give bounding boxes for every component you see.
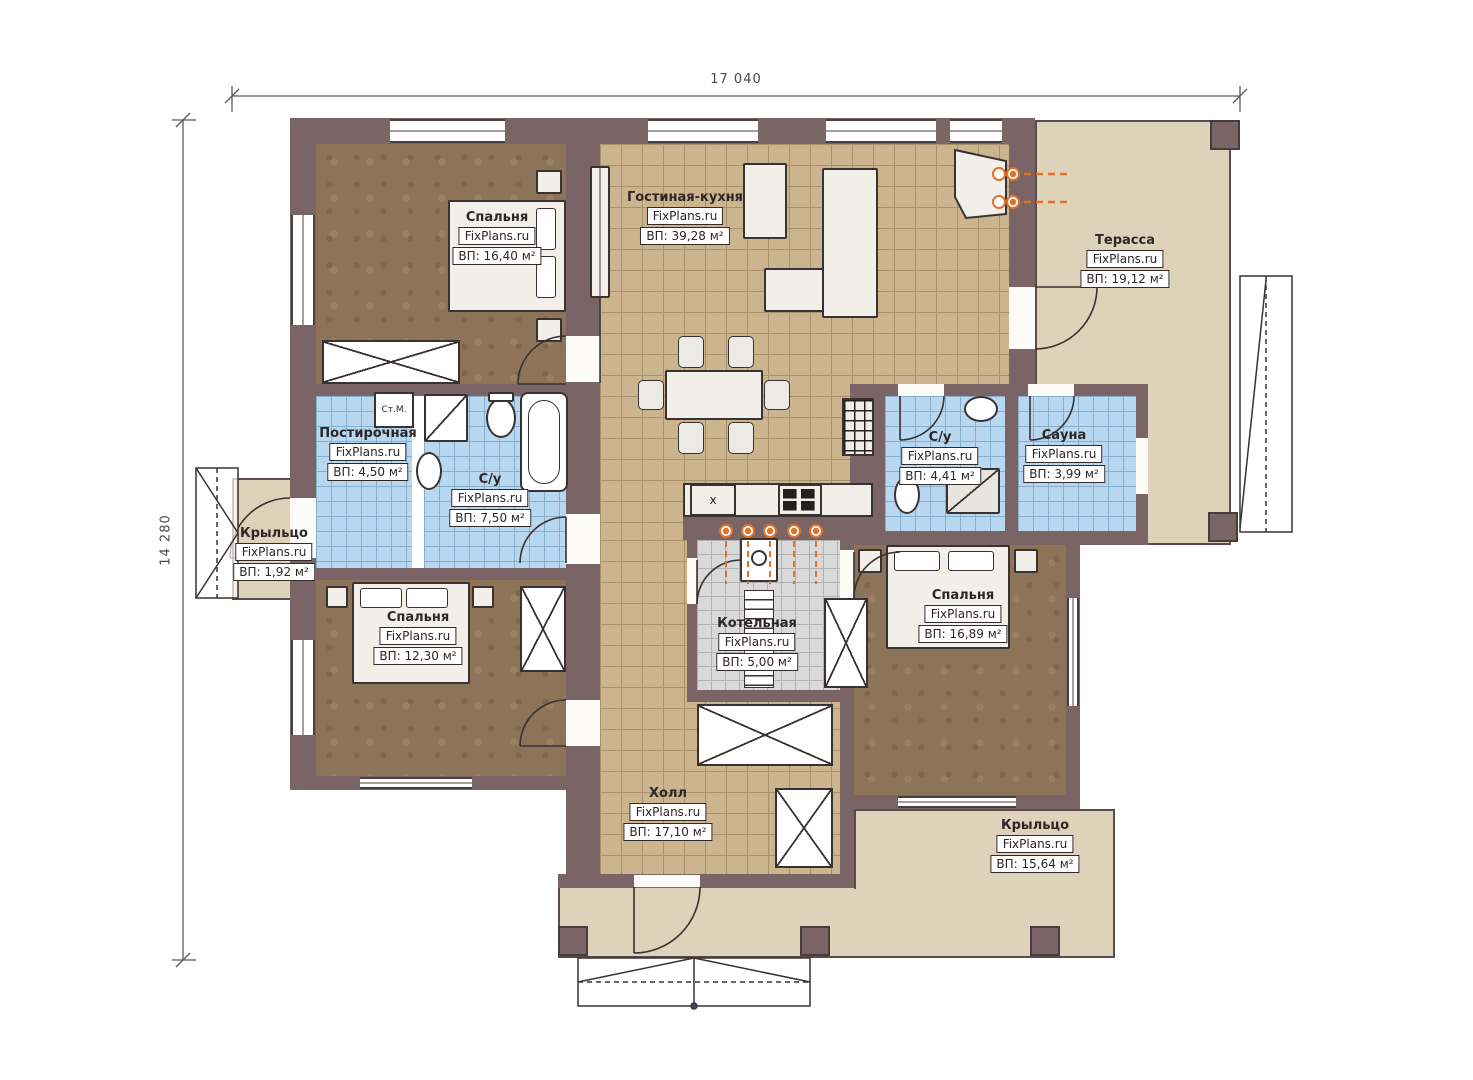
boiler-dial <box>751 550 767 566</box>
room-label-boiler: Котельная FixPlans.ru ВП: 5,00 м² <box>716 616 798 671</box>
room-area: ВП: 16,40 м² <box>452 247 541 265</box>
washing-machine: Ст.М. <box>374 392 414 428</box>
room-area: ВП: 19,12 м² <box>1080 270 1169 288</box>
door-opening <box>566 336 600 382</box>
window <box>1067 598 1079 706</box>
room-name: С/у <box>929 430 952 445</box>
wardrobe <box>322 340 460 384</box>
door-opening <box>634 875 700 887</box>
wall <box>850 384 1148 396</box>
room-site: FixPlans.ru <box>459 227 536 245</box>
room-name: Терасса <box>1095 233 1155 248</box>
room-area: ВП: 15,64 м² <box>990 855 1079 873</box>
room-label-bathroom-2: С/у FixPlans.ru ВП: 4,41 м² <box>899 430 981 485</box>
nightstand <box>536 170 562 194</box>
room-site: FixPlans.ru <box>719 633 796 651</box>
window <box>390 119 505 143</box>
room-label-laundry: Постирочная FixPlans.ru ВП: 4,50 м² <box>319 426 416 481</box>
room-area: ВП: 5,00 м² <box>716 653 798 671</box>
door-opening <box>1136 438 1148 494</box>
door-opening <box>566 700 600 746</box>
sofa <box>764 268 824 312</box>
door-opening <box>898 384 944 396</box>
room-site: FixPlans.ru <box>1087 250 1164 268</box>
chair <box>638 380 664 410</box>
chair <box>678 422 704 454</box>
door-opening <box>1028 384 1074 396</box>
door-opening <box>1009 287 1035 349</box>
room-name: Сауна <box>1042 428 1087 443</box>
wall <box>290 568 600 580</box>
dimension-height: 14 280 <box>159 514 174 566</box>
room-label-bedroom-2: Спальня FixPlans.ru ВП: 12,30 м² <box>373 610 462 665</box>
room-name: Холл <box>649 786 687 801</box>
door-opening <box>687 558 697 604</box>
room-label-porch-left: Крыльцо FixPlans.ru ВП: 1,92 м² <box>233 526 315 581</box>
room-name: Котельная <box>717 616 797 631</box>
porch-column <box>1030 926 1060 956</box>
room-site: FixPlans.ru <box>647 207 724 225</box>
room-label-hall: Холл FixPlans.ru ВП: 17,10 м² <box>623 786 712 841</box>
room-label-terrace: Терасса FixPlans.ru ВП: 19,12 м² <box>1080 233 1169 288</box>
window <box>648 119 758 143</box>
stove <box>778 484 822 516</box>
terrace-column <box>1210 120 1240 150</box>
pillow <box>894 551 940 571</box>
room-site: FixPlans.ru <box>452 489 529 507</box>
sink <box>416 452 442 490</box>
chair <box>764 380 790 410</box>
room-area: ВП: 12,30 м² <box>373 647 462 665</box>
porch-column <box>800 926 830 956</box>
nightstand <box>1014 549 1038 573</box>
wardrobe <box>775 788 833 868</box>
room-site: FixPlans.ru <box>630 803 707 821</box>
room-name: Спальня <box>932 588 994 603</box>
dining-table <box>665 370 763 420</box>
wall <box>683 517 850 540</box>
room-site: FixPlans.ru <box>330 443 407 461</box>
room-area: ВП: 4,50 м² <box>327 463 409 481</box>
room-area: ВП: 4,41 м² <box>899 467 981 485</box>
pillow <box>406 588 448 608</box>
room-label-bathroom-1: С/у FixPlans.ru ВП: 7,50 м² <box>449 472 531 527</box>
nightstand <box>326 586 348 608</box>
kitchen-appliance <box>842 398 874 456</box>
room-label-living-kitchen: Гостиная-кухня FixPlans.ru ВП: 39,28 м² <box>627 190 743 245</box>
shower <box>424 394 468 442</box>
nightstand <box>536 318 562 342</box>
tv-stand <box>743 163 787 239</box>
chair <box>728 336 754 368</box>
window <box>950 119 1002 143</box>
room-name: Крыльцо <box>240 526 308 541</box>
porch-column <box>558 926 588 956</box>
chair <box>678 336 704 368</box>
room-label-sauna: Сауна FixPlans.ru ВП: 3,99 м² <box>1023 428 1105 483</box>
kitchen-sink-cabinet: x <box>690 484 736 516</box>
room-site: FixPlans.ru <box>925 605 1002 623</box>
room-name: Крыльцо <box>1001 818 1069 833</box>
chair <box>728 422 754 454</box>
kitchen-sink-mark: x <box>709 493 716 507</box>
bathtub-inner <box>528 400 560 484</box>
room-name: Спальня <box>466 210 528 225</box>
window <box>291 215 315 325</box>
wall <box>1005 396 1018 531</box>
room-name: Постирочная <box>319 426 416 441</box>
pillow <box>360 588 402 608</box>
toilet <box>486 398 516 438</box>
room-label-bedroom-3: Спальня FixPlans.ru ВП: 16,89 м² <box>918 588 1007 643</box>
wardrobe <box>520 586 566 672</box>
room-area: ВП: 16,89 м² <box>918 625 1007 643</box>
dimension-width: 17 040 <box>710 72 762 87</box>
floor-plan-canvas: x Ст.М. <box>0 0 1473 1080</box>
wall <box>687 690 840 702</box>
window <box>360 777 472 789</box>
wall <box>558 874 854 888</box>
nightstand <box>472 586 494 608</box>
room-area: ВП: 39,28 м² <box>640 227 729 245</box>
room-site: FixPlans.ru <box>902 447 979 465</box>
room-name: Спальня <box>387 610 449 625</box>
room-site: FixPlans.ru <box>1026 445 1103 463</box>
room-site: FixPlans.ru <box>997 835 1074 853</box>
pillow <box>948 551 994 571</box>
wardrobe <box>697 704 833 766</box>
room-area: ВП: 3,99 м² <box>1023 465 1105 483</box>
washing-machine-label: Ст.М. <box>381 405 406 415</box>
nightstand <box>858 549 882 573</box>
room-label-bedroom-1: Спальня FixPlans.ru ВП: 16,40 м² <box>452 210 541 265</box>
room-area: ВП: 17,10 м² <box>623 823 712 841</box>
room-name: С/у <box>479 472 502 487</box>
sofa <box>822 168 878 318</box>
room-name: Гостиная-кухня <box>627 190 743 205</box>
window <box>898 796 1016 808</box>
sink <box>964 396 998 422</box>
vent-shaft <box>590 166 610 298</box>
room-label-porch-main: Крыльцо FixPlans.ru ВП: 15,64 м² <box>990 818 1079 873</box>
toilet-tank <box>488 392 514 402</box>
room-area: ВП: 1,92 м² <box>233 563 315 581</box>
window <box>291 640 315 735</box>
door-opening <box>566 514 600 564</box>
room-site: FixPlans.ru <box>380 627 457 645</box>
window <box>826 119 936 143</box>
door-opening <box>840 550 854 600</box>
room-area: ВП: 7,50 м² <box>449 509 531 527</box>
terrace-column <box>1208 512 1238 542</box>
wardrobe <box>824 598 868 688</box>
room-site: FixPlans.ru <box>236 543 313 561</box>
wall <box>850 531 1148 545</box>
